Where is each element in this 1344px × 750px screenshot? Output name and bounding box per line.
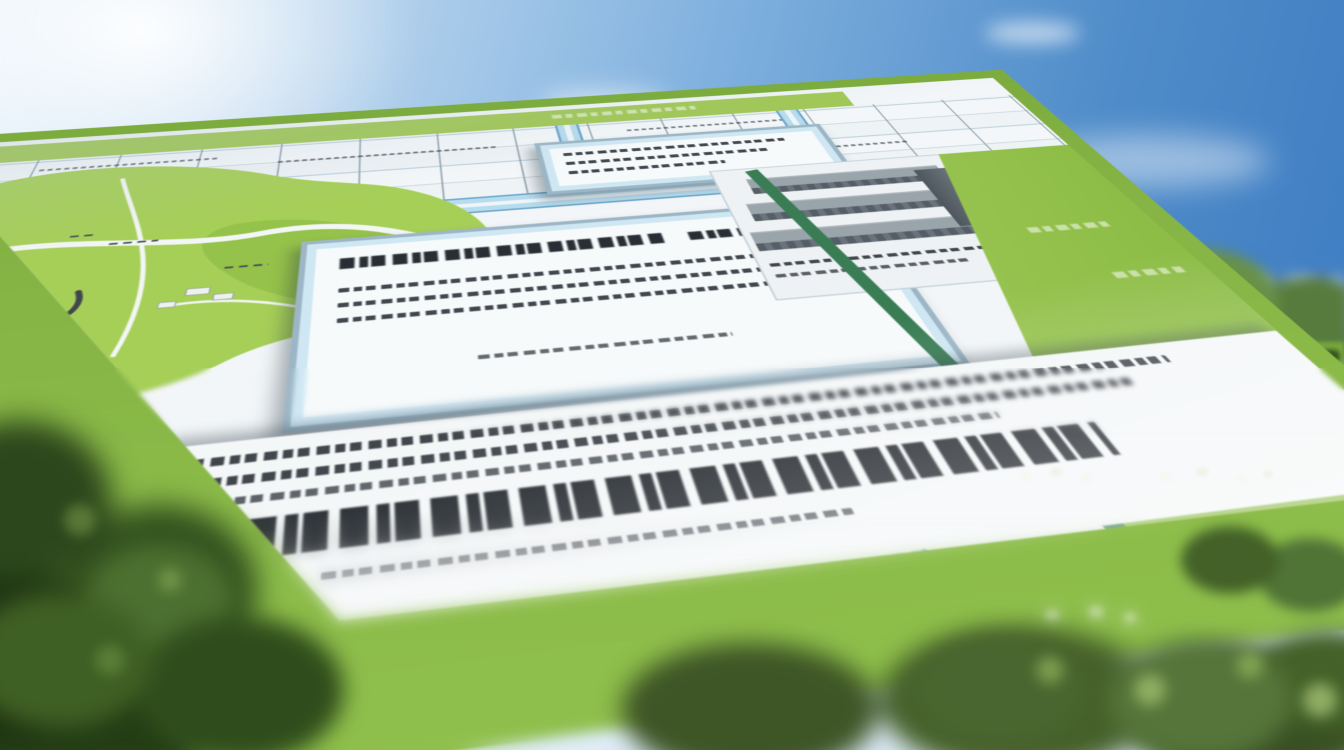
flowers-white-1	[1012, 462, 1108, 490]
central-panel-title	[339, 233, 665, 269]
central-panel-footer-line	[478, 332, 733, 359]
hedge-left-bokeh-lights	[20, 460, 320, 730]
scene: Photorealistic tilt-shift rendering of a…	[0, 0, 1344, 750]
hedge-right-bokeh-lights	[1000, 620, 1344, 750]
bush-right-by-plan	[1170, 505, 1344, 625]
flowers-white-2	[1150, 462, 1280, 492]
